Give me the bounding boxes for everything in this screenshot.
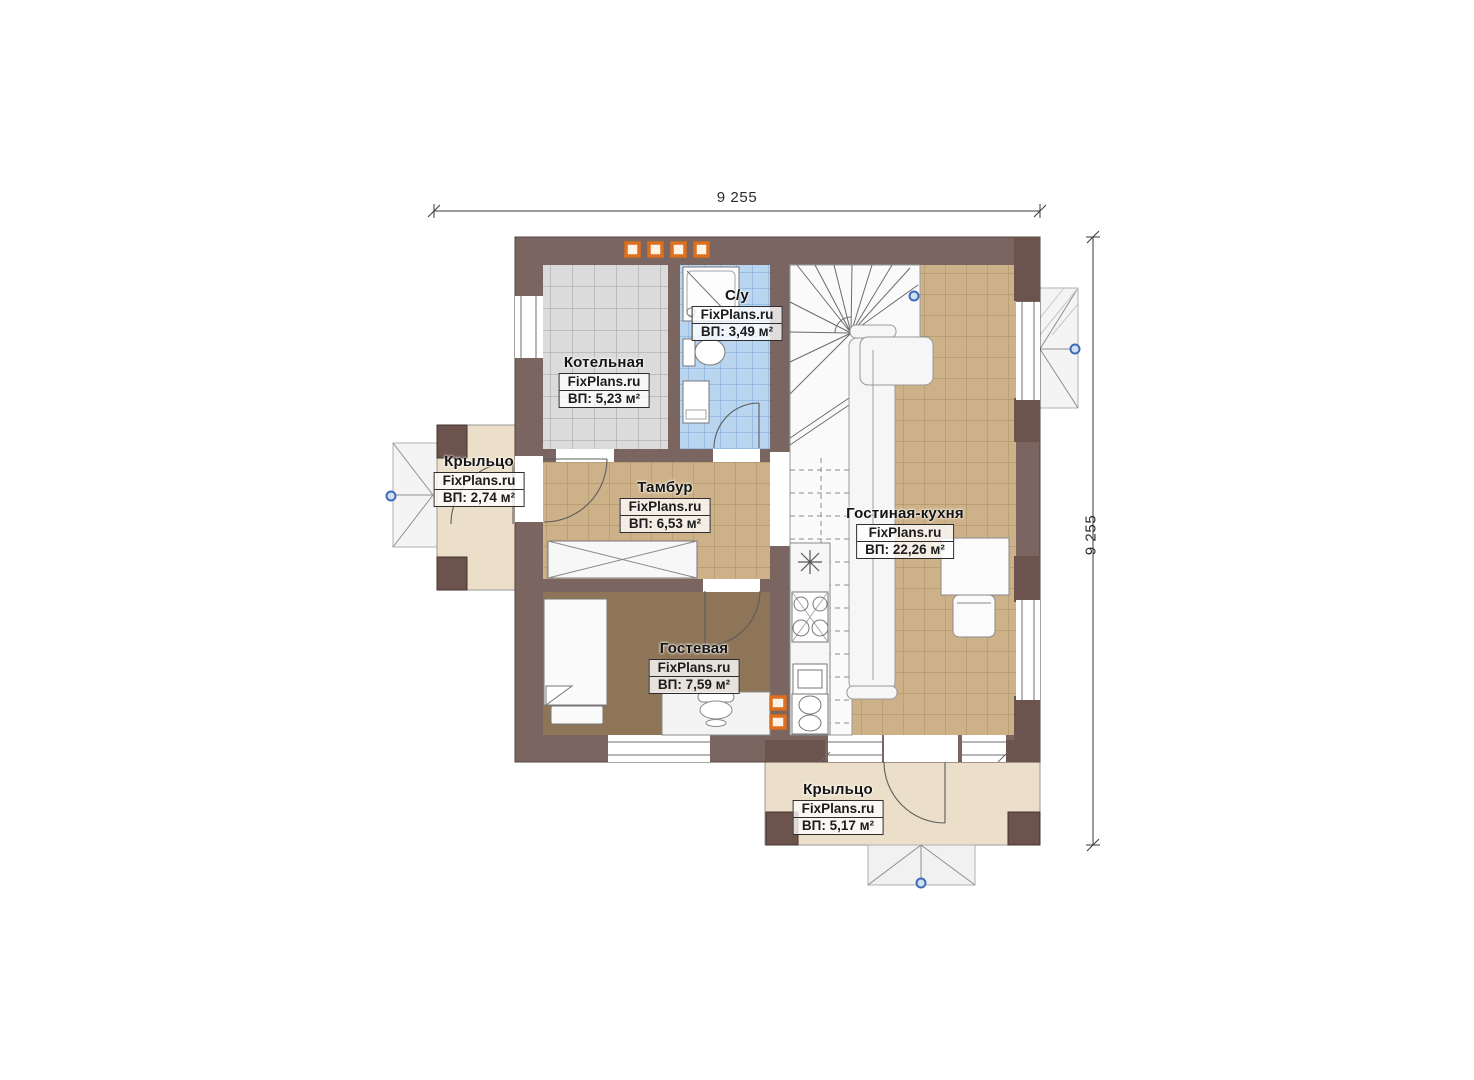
room-title: Котельная — [564, 354, 644, 371]
watermark-text: FixPlans.ru — [621, 499, 710, 516]
toilet — [683, 339, 725, 366]
room-info-box: FixPlans.ru ВП: 2,74 м² — [434, 472, 525, 507]
porch-left — [393, 425, 516, 590]
room-label-kotelnaya: Котельная FixPlans.ru ВП: 5,23 м² — [559, 354, 650, 408]
room-info-box: FixPlans.ru ВП: 7,59 м² — [649, 659, 740, 694]
stove — [792, 592, 828, 642]
room-label-su: С/у FixPlans.ru ВП: 3,49 м² — [692, 287, 783, 341]
room-title: Крыльцо — [803, 781, 873, 798]
room-title: Крыльцо — [444, 453, 514, 470]
room-info-box: FixPlans.ru ВП: 3,49 м² — [692, 306, 783, 341]
room-label-gostevaya: Гостевая FixPlans.ru ВП: 7,59 м² — [649, 640, 740, 694]
room-label-gostinaya-kuhnya: Гостиная-кухня FixPlans.ru ВП: 22,26 м² — [846, 505, 964, 559]
wardrobe — [548, 541, 697, 578]
kitchen-counter — [790, 543, 830, 735]
room-title: Гостевая — [660, 640, 728, 657]
room-title: Гостиная-кухня — [846, 505, 964, 522]
room-area-text: ВП: 5,23 м² — [560, 391, 649, 407]
room-area-text: ВП: 3,49 м² — [693, 324, 782, 340]
kitchen-sink — [792, 694, 828, 734]
room-area-text: ВП: 6,53 м² — [621, 516, 710, 532]
dimension-right-label: 9 255 — [1083, 515, 1100, 556]
vent-symbol — [798, 550, 822, 574]
washer — [683, 381, 709, 423]
room-label-porch-left: Крыльцо FixPlans.ru ВП: 2,74 м² — [434, 453, 525, 507]
bed — [544, 599, 607, 724]
room-info-box: FixPlans.ru ВП: 5,17 м² — [793, 800, 884, 835]
room-label-tambur: Тамбур FixPlans.ru ВП: 6,53 м² — [620, 479, 711, 533]
desk-and-chair — [662, 692, 770, 735]
watermark-text: FixPlans.ru — [435, 473, 524, 490]
watermark-text: FixPlans.ru — [794, 801, 883, 818]
dimension-top-label: 9 255 — [717, 189, 758, 206]
room-info-box: FixPlans.ru ВП: 5,23 м² — [559, 373, 650, 408]
floor-plan-canvas: 9 255 9 255 Котельная FixPlans.ru ВП: 5,… — [0, 0, 1474, 1080]
room-info-box: FixPlans.ru ВП: 22,26 м² — [856, 524, 954, 559]
room-area-text: ВП: 5,17 м² — [794, 818, 883, 834]
kitchen-cabinet — [793, 664, 827, 694]
watermark-text: FixPlans.ru — [693, 307, 782, 324]
room-info-box: FixPlans.ru ВП: 6,53 м² — [620, 498, 711, 533]
watermark-text: FixPlans.ru — [560, 374, 649, 391]
room-area-text: ВП: 22,26 м² — [857, 542, 953, 558]
watermark-text: FixPlans.ru — [650, 660, 739, 677]
room-area-text: ВП: 7,59 м² — [650, 677, 739, 693]
room-label-porch-bottom: Крыльцо FixPlans.ru ВП: 5,17 м² — [793, 781, 884, 835]
floor-plan-drawing — [0, 0, 1474, 1080]
room-title: С/у — [725, 287, 749, 304]
room-title: Тамбур — [637, 479, 693, 496]
watermark-text: FixPlans.ru — [857, 525, 953, 542]
room-area-text: ВП: 2,74 м² — [435, 490, 524, 506]
